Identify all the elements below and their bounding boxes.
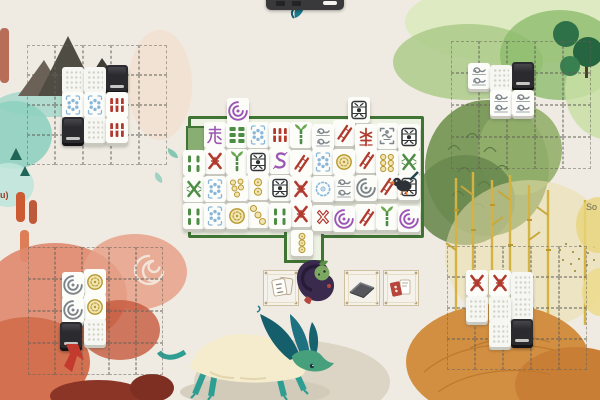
tile-ornateb[interactable] [247, 149, 269, 175]
top-toolbar[interactable] [266, 0, 344, 10]
tile-swirlp[interactable] [227, 98, 249, 124]
tile-redx[interactable] [204, 148, 226, 174]
tile-coin1[interactable] [333, 149, 355, 175]
tile-ornateb[interactable] [398, 174, 420, 200]
grid-cell [531, 246, 559, 277]
grid-cell [109, 343, 136, 375]
grid-cell [535, 41, 563, 73]
tile-sticks3[interactable] [269, 122, 291, 148]
grid-cell [507, 137, 535, 169]
grid-cell [559, 339, 587, 370]
tile-bamboo[interactable] [226, 149, 248, 175]
ornate2-icon [490, 90, 512, 116]
tile-redx[interactable] [466, 270, 488, 296]
ornateb-icon [398, 124, 420, 150]
flower-icon [204, 176, 226, 202]
tile-back[interactable] [84, 117, 106, 143]
tile-diag[interactable] [355, 147, 377, 173]
bars2-icon [269, 203, 291, 229]
tile-black[interactable] [511, 319, 533, 345]
coin1-icon [226, 203, 248, 229]
grid-cell [109, 279, 136, 311]
diag-icon [355, 204, 377, 230]
tile-bars2[interactable] [183, 203, 205, 229]
tile-redx[interactable] [290, 176, 312, 202]
tile-ornateg[interactable] [376, 123, 398, 149]
grid-cell [27, 135, 55, 165]
tile-dragons[interactable] [269, 148, 291, 174]
greenx-icon [183, 176, 205, 202]
bars2-icon [183, 150, 205, 176]
tile-blackr[interactable] [60, 322, 82, 348]
grid-cell [451, 105, 479, 137]
coins2-icon [247, 174, 269, 200]
coin1-icon [84, 294, 106, 320]
diag-icon [355, 147, 377, 173]
grid-cell [535, 73, 563, 105]
tile-back[interactable] [490, 65, 512, 91]
tile-coinscl[interactable] [226, 175, 248, 201]
tile-swirlg[interactable] [62, 272, 84, 298]
tile-back[interactable] [62, 67, 84, 93]
tile-coin1[interactable] [226, 203, 248, 229]
tile-ornate2[interactable] [468, 63, 490, 89]
tile-char[interactable] [204, 122, 226, 148]
tile-greenx[interactable] [183, 176, 205, 202]
swap-tile-button[interactable] [383, 270, 419, 306]
tile-black[interactable] [512, 62, 534, 88]
tile-swirlg[interactable] [355, 175, 377, 201]
swirlp-icon [227, 98, 249, 124]
tile-flower[interactable] [204, 176, 226, 202]
bamboo-icon [376, 204, 398, 230]
bamboo-icon [226, 149, 248, 175]
ornate2-icon [468, 63, 490, 89]
tile-redx[interactable] [290, 201, 312, 227]
ornate2-icon [512, 90, 534, 116]
dragon-companion-button[interactable] [293, 256, 337, 308]
diag-icon [333, 120, 355, 146]
bars3-icon [226, 122, 248, 148]
grid-cell [139, 45, 167, 75]
grid-cell [563, 105, 591, 137]
redx-icon [466, 270, 488, 296]
game-stage: u) So [0, 0, 600, 400]
tile-back[interactable] [84, 319, 106, 345]
grid-cell [139, 105, 167, 135]
grid-cell [82, 343, 109, 375]
tile-flower[interactable] [62, 92, 84, 118]
grid-cell [563, 73, 591, 105]
diag-icon [290, 150, 312, 176]
sticks3-icon [106, 92, 128, 118]
sticks3-icon [269, 122, 291, 148]
grid-cell [27, 45, 55, 75]
tile-ornate2[interactable] [512, 90, 534, 116]
coinsdg-icon [247, 202, 269, 228]
shuffle-tile-button[interactable] [344, 270, 380, 306]
tile-diag[interactable] [290, 150, 312, 176]
ornateb-icon [269, 175, 291, 201]
tile-diag[interactable] [333, 120, 355, 146]
grid-cell [136, 279, 163, 311]
tile-back[interactable] [511, 294, 533, 320]
dragon-companion-sprite [293, 256, 337, 308]
tile-flower[interactable] [84, 92, 106, 118]
grid-cell [28, 311, 55, 343]
tile-redxh[interactable] [312, 205, 334, 231]
tile-swirlp[interactable] [398, 206, 420, 232]
grid-cell [27, 75, 55, 105]
grid-cell [535, 137, 563, 169]
grid-cell [451, 137, 479, 169]
ornateb-icon [247, 149, 269, 175]
tile-bamboo[interactable] [290, 122, 312, 148]
coins3-icon [291, 230, 313, 256]
grid-cell [139, 75, 167, 105]
grid-cell [447, 339, 475, 370]
toolbar-pill [323, 1, 337, 5]
grid-cell [139, 135, 167, 165]
grid-cell [136, 311, 163, 343]
char-icon [204, 122, 226, 148]
coin1-icon [84, 269, 106, 295]
tile-flower[interactable] [247, 122, 269, 148]
tile-ornate2[interactable] [333, 175, 355, 201]
ornate2-icon [333, 175, 355, 201]
grid-cell [28, 247, 55, 279]
bars2-icon [183, 203, 205, 229]
tile-bamboo[interactable] [376, 204, 398, 230]
tile-black[interactable] [106, 65, 128, 91]
grid-cell [535, 105, 563, 137]
tile-diag[interactable] [355, 204, 377, 230]
grid-cell [563, 41, 591, 73]
tile-ornateb[interactable] [398, 124, 420, 150]
tile-circleb[interactable] [312, 176, 334, 202]
dragons-icon [269, 148, 291, 174]
tile-bars2[interactable] [183, 150, 205, 176]
tile-diag[interactable] [376, 173, 398, 199]
redx-icon [489, 270, 511, 296]
grid-cell [109, 247, 136, 279]
tile-coin1[interactable] [84, 269, 106, 295]
flower-icon [312, 149, 334, 175]
tile-ornateb[interactable] [269, 175, 291, 201]
ornateg-icon [376, 123, 398, 149]
grid-cell [28, 279, 55, 311]
grid-cell [559, 277, 587, 308]
tile-sticks3[interactable] [106, 117, 128, 143]
tile-back[interactable] [489, 296, 511, 322]
redx-icon [204, 148, 226, 174]
tile-ornate2[interactable] [490, 90, 512, 116]
tile-ornate2[interactable] [312, 124, 334, 150]
circleb-icon [312, 176, 334, 202]
tile-flower[interactable] [312, 149, 334, 175]
tile-back[interactable] [489, 321, 511, 347]
tile-coins2[interactable] [247, 174, 269, 200]
grid-cell [531, 339, 559, 370]
grid-cell [563, 137, 591, 169]
ornate2-icon [312, 124, 334, 150]
tile-redx[interactable] [489, 270, 511, 296]
sticks3-icon [106, 117, 128, 143]
tile-bars3[interactable] [226, 122, 248, 148]
swirlg-icon [62, 272, 84, 298]
ornateb-icon [398, 174, 420, 200]
swirlp-icon [398, 206, 420, 232]
flower-icon [62, 92, 84, 118]
swirlg-icon [62, 297, 84, 323]
dragon-illustration [159, 314, 334, 400]
tile-back[interactable] [84, 67, 106, 93]
redxh-icon [312, 205, 334, 231]
grid-cell [531, 277, 559, 308]
diag-icon [376, 173, 398, 199]
flower-icon [84, 92, 106, 118]
swap-icon [384, 271, 418, 305]
swirlp-icon [333, 206, 355, 232]
grid-cell [136, 343, 163, 375]
tile-back[interactable] [466, 296, 488, 322]
grid-cell [531, 308, 559, 339]
toolbar-segment [292, 1, 301, 6]
tile-bars2[interactable] [269, 203, 291, 229]
grid-cell [136, 247, 163, 279]
coinscl-icon [226, 175, 248, 201]
bamboo-icon [290, 122, 312, 148]
flower-icon [247, 122, 269, 148]
tile-swirlp[interactable] [333, 206, 355, 232]
grid-cell [559, 246, 587, 277]
toolbar-segment [276, 1, 285, 6]
shuffle-icon [345, 271, 379, 305]
tile-coin1[interactable] [84, 294, 106, 320]
tile-greenx[interactable] [398, 149, 420, 175]
edge-label-left: u) [0, 190, 9, 200]
swirlg-icon [355, 175, 377, 201]
grid-cell [559, 308, 587, 339]
grid-cell [28, 343, 55, 375]
greenx-icon [398, 149, 420, 175]
flower-icon [204, 203, 226, 229]
grid-cell [109, 311, 136, 343]
tile-flower[interactable] [204, 203, 226, 229]
tile-black[interactable] [62, 117, 84, 143]
grid-cell [479, 137, 507, 169]
redx-icon [290, 201, 312, 227]
redx-icon [290, 176, 312, 202]
grid-cell [27, 105, 55, 135]
edge-label-right: So [586, 202, 597, 212]
coin1-icon [333, 149, 355, 175]
tile-coinsdg[interactable] [247, 202, 269, 228]
tile-sticks3[interactable] [106, 92, 128, 118]
tile-coins3[interactable] [291, 230, 313, 256]
tile-swirlg[interactable] [62, 297, 84, 323]
